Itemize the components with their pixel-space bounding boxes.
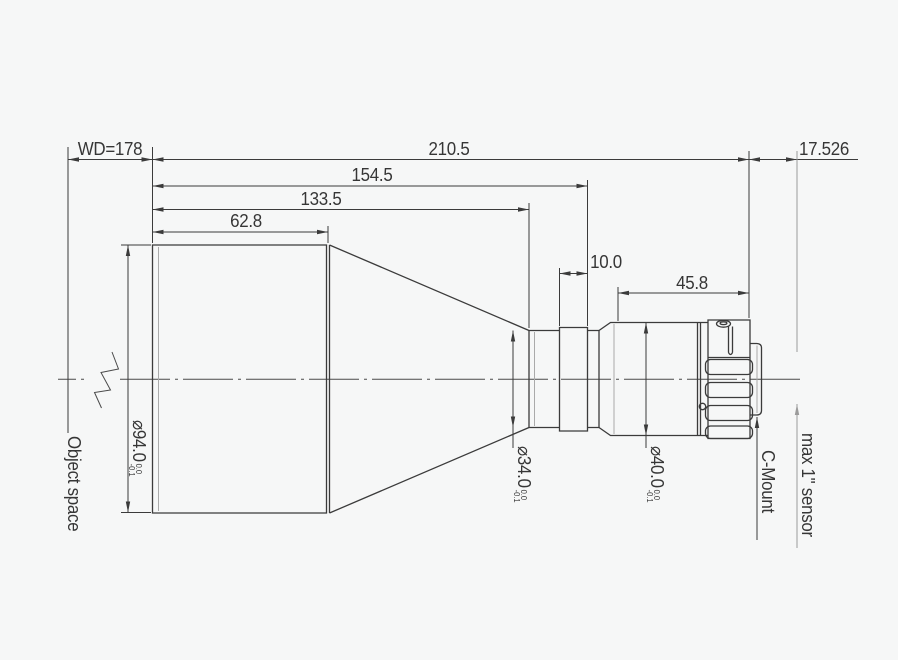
knurl-bump (706, 426, 753, 439)
dim-working-distance: WD=178 (78, 140, 143, 159)
dimension-arrows (68, 157, 797, 512)
label-max-sensor: max 1" sensor (798, 433, 818, 537)
dim-front-to-tube-face: 133.5 (301, 190, 342, 209)
knurl-bump (706, 406, 753, 421)
break-symbol (95, 352, 119, 408)
dim-front-to-ring-rear: 154.5 (352, 166, 393, 185)
tolerance-stack: 0.0-0.1 (646, 490, 660, 503)
sensor-arrow (795, 404, 799, 415)
dim-front-diameter: ⌀94.00.0-0.1 (129, 420, 149, 477)
dim-ring-width: 10.0 (590, 253, 622, 272)
dim-mid-diameter: ⌀34.00.0-0.1 (514, 446, 534, 503)
label-object-space: Object space (64, 436, 84, 531)
dim-overall-length: 210.5 (429, 140, 470, 159)
tolerance-stack: 0.0-0.1 (513, 490, 527, 503)
dim-rear-diameter: ⌀40.00.0-0.1 (647, 446, 667, 503)
dim-rear-barrel-length: 45.8 (676, 274, 708, 293)
dim-front-barrel-length: 62.8 (230, 212, 262, 231)
dim-flange-distance: 17.526 (799, 140, 849, 159)
lens-drawing-canvas (0, 0, 898, 660)
optical-axis-centerline (58, 352, 802, 408)
tolerance-stack: 0.0-0.1 (128, 464, 142, 477)
lock-slot (729, 327, 733, 355)
dimension-lines (68, 147, 858, 540)
knurl-bump (706, 383, 753, 398)
label-c-mount: C-Mount (758, 450, 778, 513)
technical-drawing-page: WD=178 210.5 17.526 154.5 133.5 62.8 10.… (0, 0, 898, 660)
knurl-bump (706, 360, 753, 375)
